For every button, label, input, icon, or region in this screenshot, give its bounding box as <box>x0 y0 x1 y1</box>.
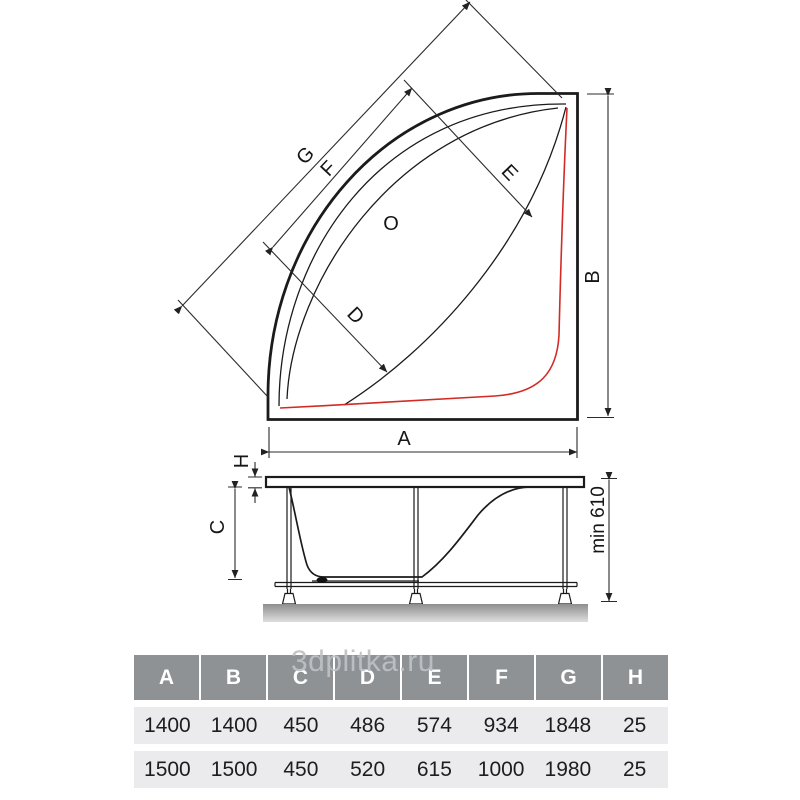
table-cell: 1848 <box>535 707 602 744</box>
overflow-label-o: O <box>383 213 399 235</box>
table-cell: 574 <box>401 707 468 744</box>
watermark: 3dplitka.ru <box>291 645 435 679</box>
page: G F E D O A B <box>0 0 800 800</box>
dim-label-c: C <box>207 520 229 534</box>
table-cell: 1980 <box>535 751 602 788</box>
dim-label-b: B <box>582 270 604 283</box>
table-cell: 25 <box>601 707 668 744</box>
frame-bottom-rail <box>275 583 577 587</box>
dim-label-a: A <box>397 428 411 450</box>
table-cell: 1500 <box>201 751 268 788</box>
table-header-cell: A <box>134 655 199 700</box>
table-cell: 450 <box>268 751 335 788</box>
table-cell: 25 <box>601 751 668 788</box>
table-cell: 1000 <box>468 751 535 788</box>
table-cell: 1400 <box>134 707 201 744</box>
drain-fitting <box>317 577 328 583</box>
table-header-cell: H <box>603 655 668 700</box>
dim-label-h: H <box>231 454 253 468</box>
table-row: 1400 1400 450 486 574 934 1848 25 <box>134 707 668 744</box>
ground <box>263 604 588 622</box>
plan-view: G F E D O A B <box>178 0 614 458</box>
elevation-view: H C min 610 <box>207 454 617 622</box>
g-extension-bottom <box>178 300 268 397</box>
table-header-cell: B <box>201 655 266 700</box>
rim-board <box>266 477 584 487</box>
table-cell: 615 <box>401 751 468 788</box>
tub-profile <box>289 487 531 577</box>
table-header-cell: G <box>536 655 601 700</box>
table-header-cell: F <box>469 655 534 700</box>
dim-label-f: F <box>316 157 340 181</box>
table-cell: 450 <box>268 707 335 744</box>
adjustable-feet <box>283 589 572 604</box>
table-cell: 486 <box>334 707 401 744</box>
h-ticks <box>248 477 262 488</box>
table-cell: 934 <box>468 707 535 744</box>
dim-label-min-height: min 610 <box>588 486 609 554</box>
table-cell: 520 <box>334 751 401 788</box>
technical-drawing: G F E D O A B <box>0 0 800 645</box>
table-cell: 1400 <box>201 707 268 744</box>
table-cell: 1500 <box>134 751 201 788</box>
table-row: 1500 1500 450 520 615 1000 1980 25 <box>134 751 668 788</box>
g-extension-top <box>466 0 562 98</box>
